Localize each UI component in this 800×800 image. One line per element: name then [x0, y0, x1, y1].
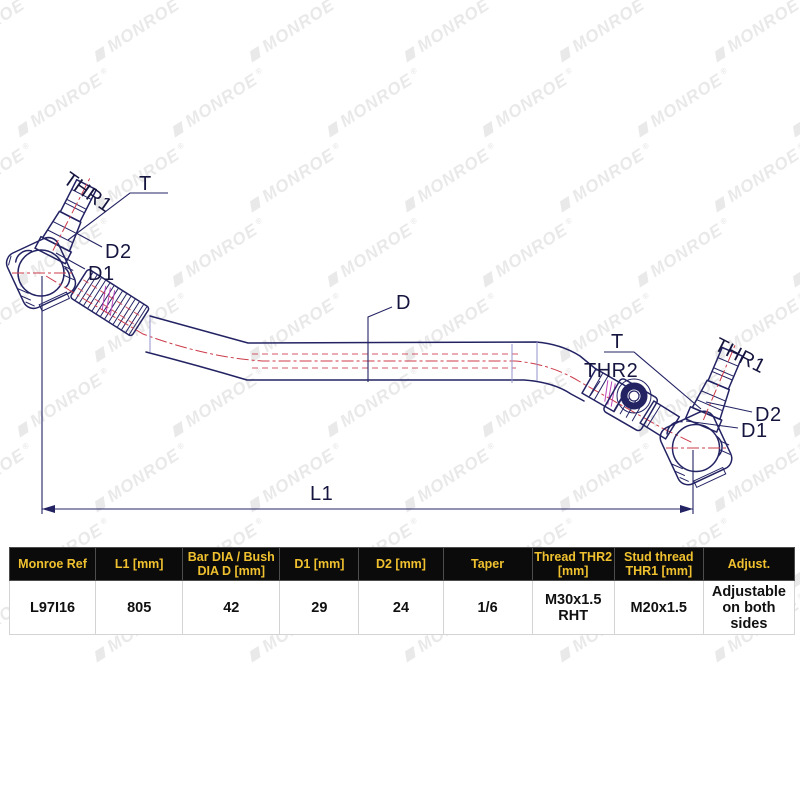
- spec-header-cell: Stud thread THR1 [mm]: [614, 548, 703, 581]
- label-thr1-left: THR1: [59, 168, 116, 217]
- spec-header-cell: Monroe Ref: [10, 548, 96, 581]
- label-d1-right: D1: [741, 420, 768, 442]
- construction-ticks: [150, 317, 537, 383]
- spec-header-cell: Taper: [443, 548, 532, 581]
- label-thr1-right: THR1: [711, 334, 769, 378]
- callouts-left: T D2 D1 THR1: [56, 168, 168, 285]
- page: { "watermark": { "text": "MONROE" }, "dr…: [0, 0, 800, 800]
- spec-table-container: Monroe RefL1 [mm]Bar DIA / Bush DIA D [m…: [9, 547, 795, 635]
- label-l1: L1: [310, 483, 333, 505]
- monroe-logo-icon: [711, 645, 730, 662]
- clamp-bolt: [617, 379, 651, 413]
- monroe-logo-icon: [556, 645, 575, 662]
- label-t-right: T: [611, 331, 624, 353]
- spec-data-cell: M30x1.5 RHT: [532, 581, 614, 635]
- label-d: D: [396, 292, 411, 314]
- spec-header-cell: Adjust.: [703, 548, 794, 581]
- monroe-logo-icon: [91, 645, 110, 662]
- hatch-lines: [671, 439, 735, 485]
- spec-data-row: L97I168054229241/6M30x1.5 RHTM20x1.5Adju…: [10, 581, 795, 635]
- spec-header-cell: D1 [mm]: [280, 548, 359, 581]
- label-thr2: THR2: [584, 360, 638, 382]
- spec-header-row: Monroe RefL1 [mm]Bar DIA / Bush DIA D [m…: [10, 548, 795, 581]
- spec-data-cell: 29: [280, 581, 359, 635]
- callouts-right: T THR2 THR1 D2 D1: [584, 331, 782, 442]
- spec-table: Monroe RefL1 [mm]Bar DIA / Bush DIA D [m…: [9, 547, 795, 635]
- spec-data-cell: Adjustable on both sides: [703, 581, 794, 635]
- spec-header-cell: L1 [mm]: [96, 548, 183, 581]
- monroe-logo-icon: [401, 645, 420, 662]
- spec-data-cell: 24: [359, 581, 443, 635]
- label-d2-left: D2: [105, 241, 132, 263]
- technical-drawing: D: [0, 0, 800, 546]
- spec-header-cell: Thread THR2 [mm]: [532, 548, 614, 581]
- spec-header-cell: Bar DIA / Bush DIA D [mm]: [183, 548, 280, 581]
- dimension-l1: L1: [42, 276, 693, 514]
- spec-header-cell: D2 [mm]: [359, 548, 443, 581]
- spec-data-cell: 805: [96, 581, 183, 635]
- spec-data-cell: L97I16: [10, 581, 96, 635]
- spec-data-cell: M20x1.5: [614, 581, 703, 635]
- label-t-left: T: [139, 173, 152, 195]
- label-d1-left: D1: [88, 263, 115, 285]
- spec-data-cell: 42: [183, 581, 280, 635]
- spec-data-cell: 1/6: [443, 581, 532, 635]
- monroe-logo-icon: [246, 645, 265, 662]
